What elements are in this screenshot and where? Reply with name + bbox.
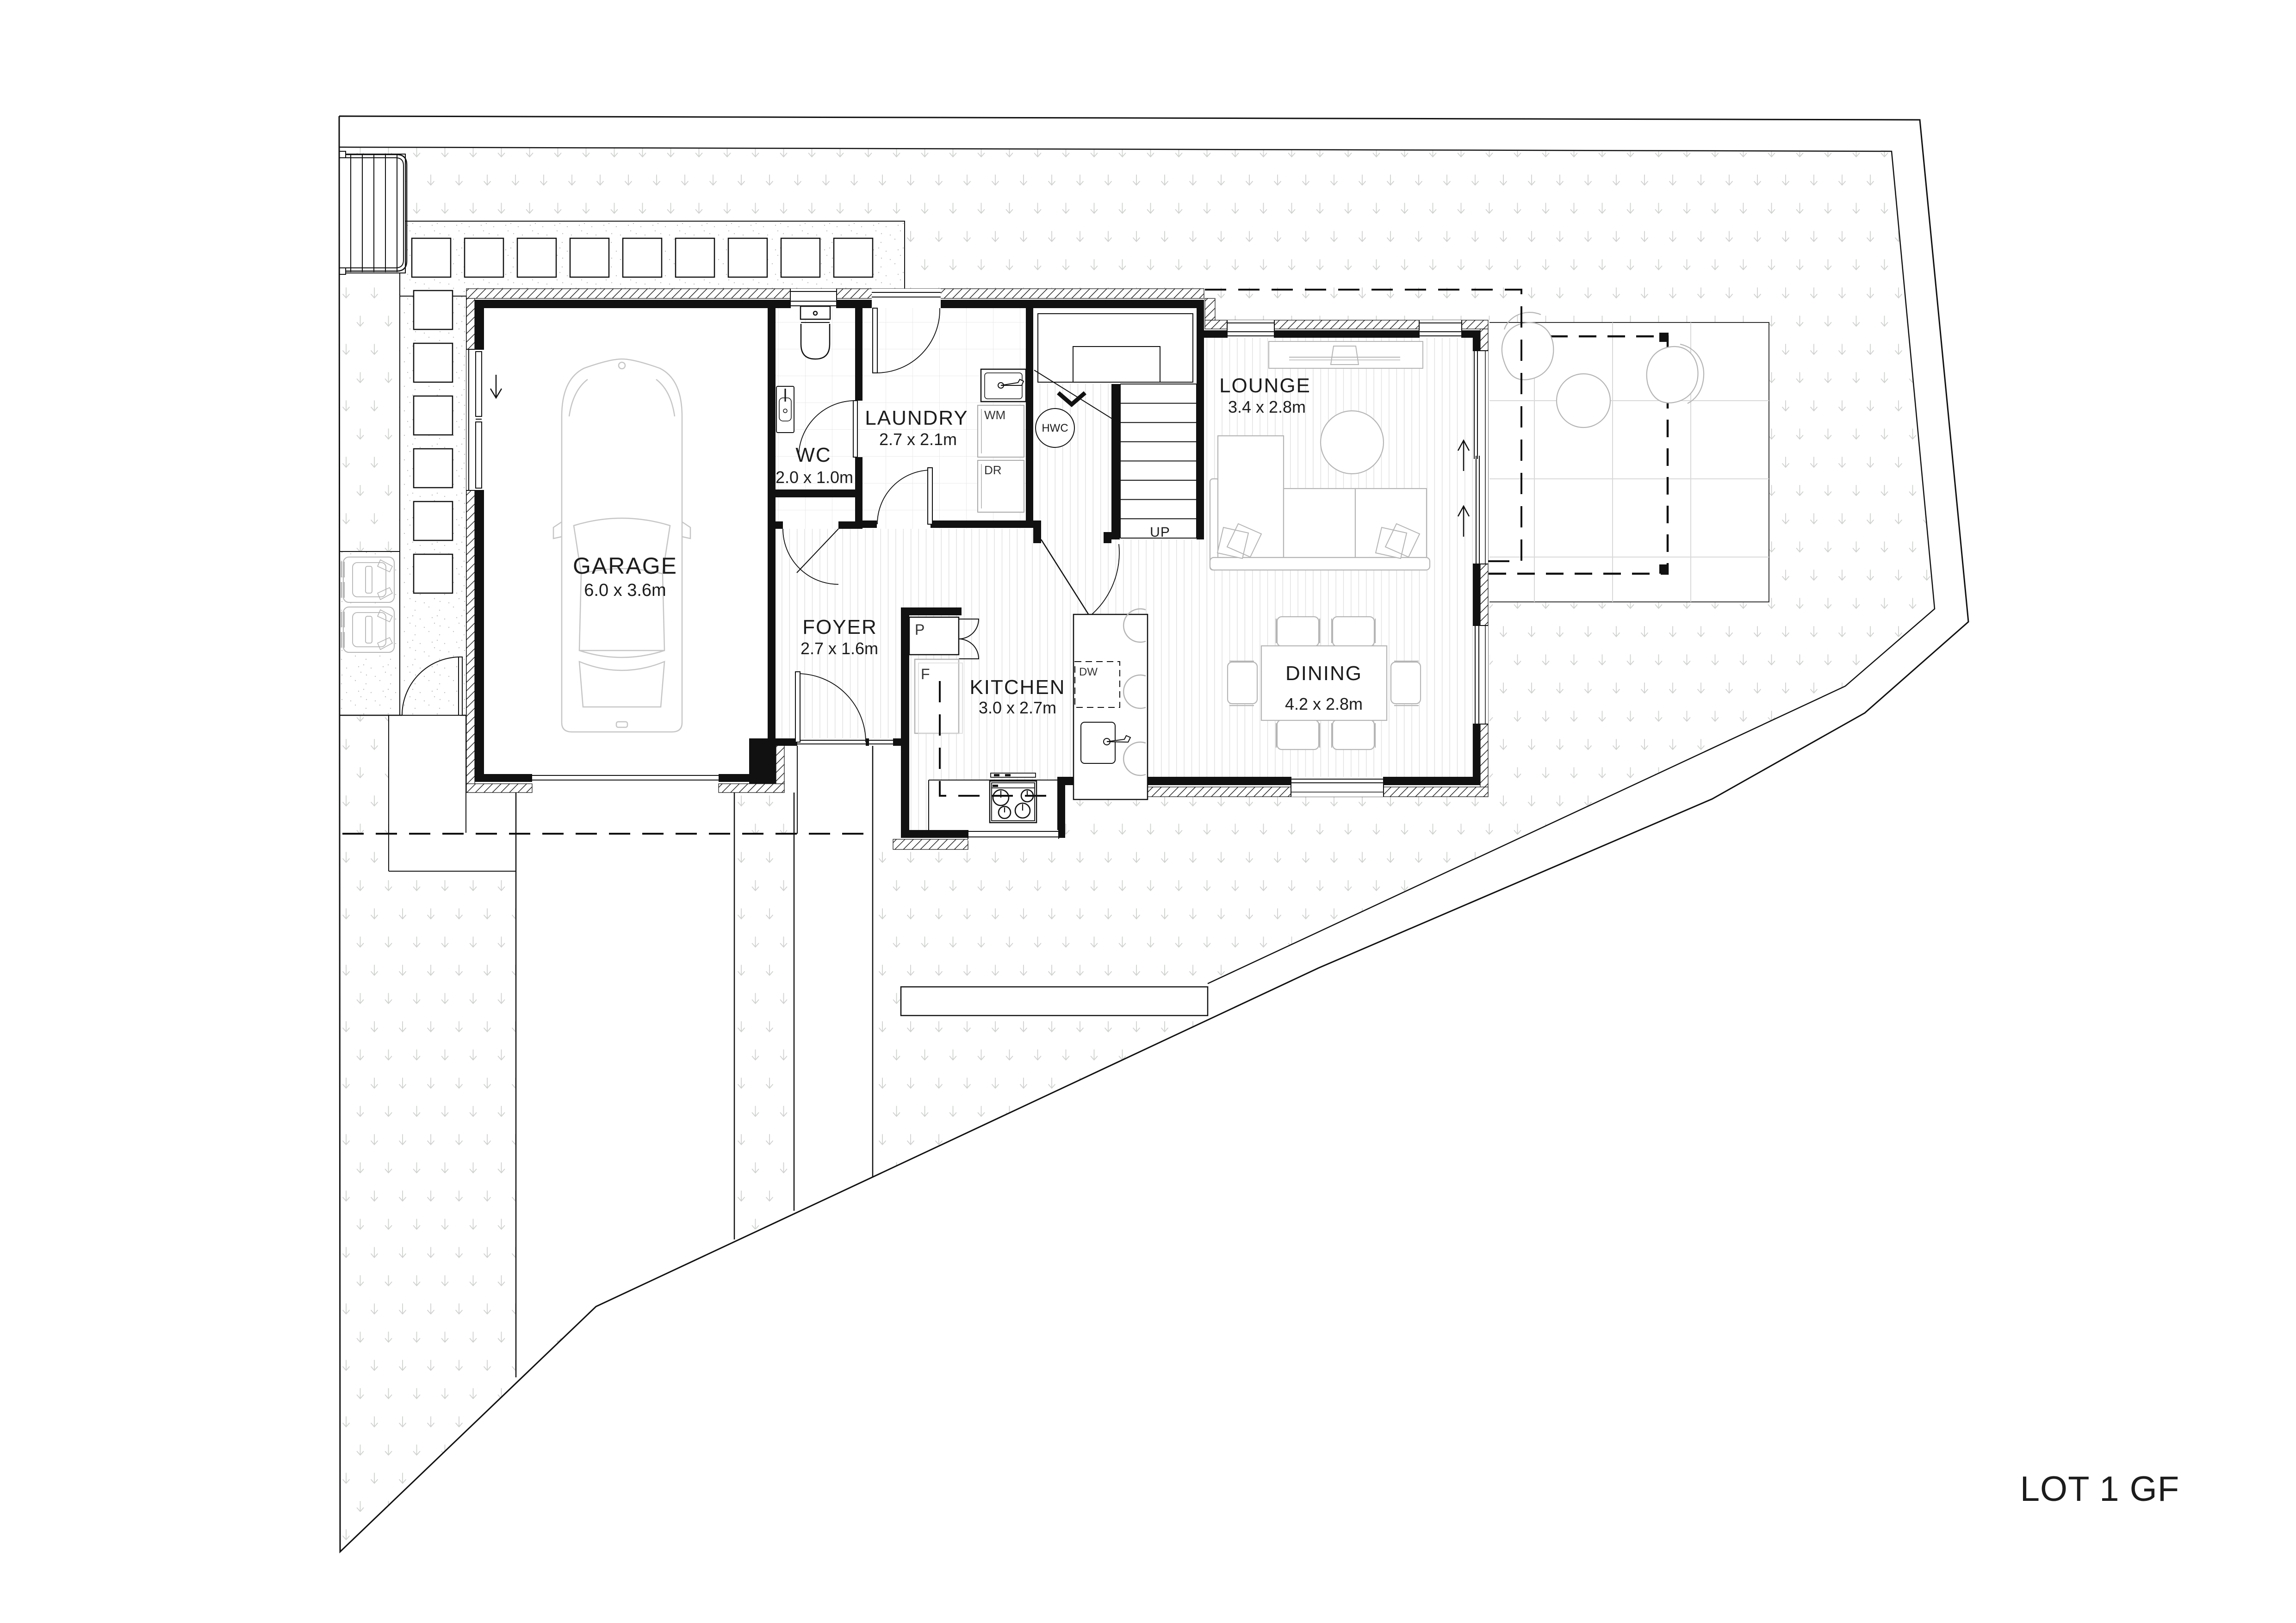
svg-text:DR: DR — [984, 463, 1002, 477]
svg-text:UP: UP — [1150, 525, 1170, 540]
svg-text:DW: DW — [1079, 666, 1098, 678]
svg-text:LOUNGE: LOUNGE — [1219, 374, 1311, 397]
svg-text:2.0 x 1.0m: 2.0 x 1.0m — [776, 468, 853, 487]
svg-text:6.0 x 3.6m: 6.0 x 3.6m — [584, 581, 666, 600]
svg-text:DINING: DINING — [1285, 662, 1362, 685]
svg-text:LOT 1 GF: LOT 1 GF — [2020, 1469, 2179, 1509]
svg-text:P: P — [915, 621, 925, 638]
svg-text:3.0 x 2.7m: 3.0 x 2.7m — [979, 698, 1056, 717]
svg-text:3.4 x 2.8m: 3.4 x 2.8m — [1228, 397, 1306, 416]
svg-text:KITCHEN: KITCHEN — [969, 676, 1065, 699]
svg-text:WC: WC — [795, 444, 831, 466]
svg-text:GARAGE: GARAGE — [573, 553, 677, 579]
svg-text:F: F — [921, 666, 930, 682]
svg-text:WM: WM — [984, 408, 1005, 422]
svg-text:2.7 x 1.6m: 2.7 x 1.6m — [800, 639, 878, 658]
svg-text:4.2 x 2.8m: 4.2 x 2.8m — [1285, 694, 1363, 713]
svg-text:HWC: HWC — [1042, 422, 1068, 434]
svg-text:FOYER: FOYER — [802, 616, 877, 638]
svg-text:LAUNDRY: LAUNDRY — [865, 407, 968, 429]
svg-text:2.7 x 2.1m: 2.7 x 2.1m — [879, 430, 957, 449]
